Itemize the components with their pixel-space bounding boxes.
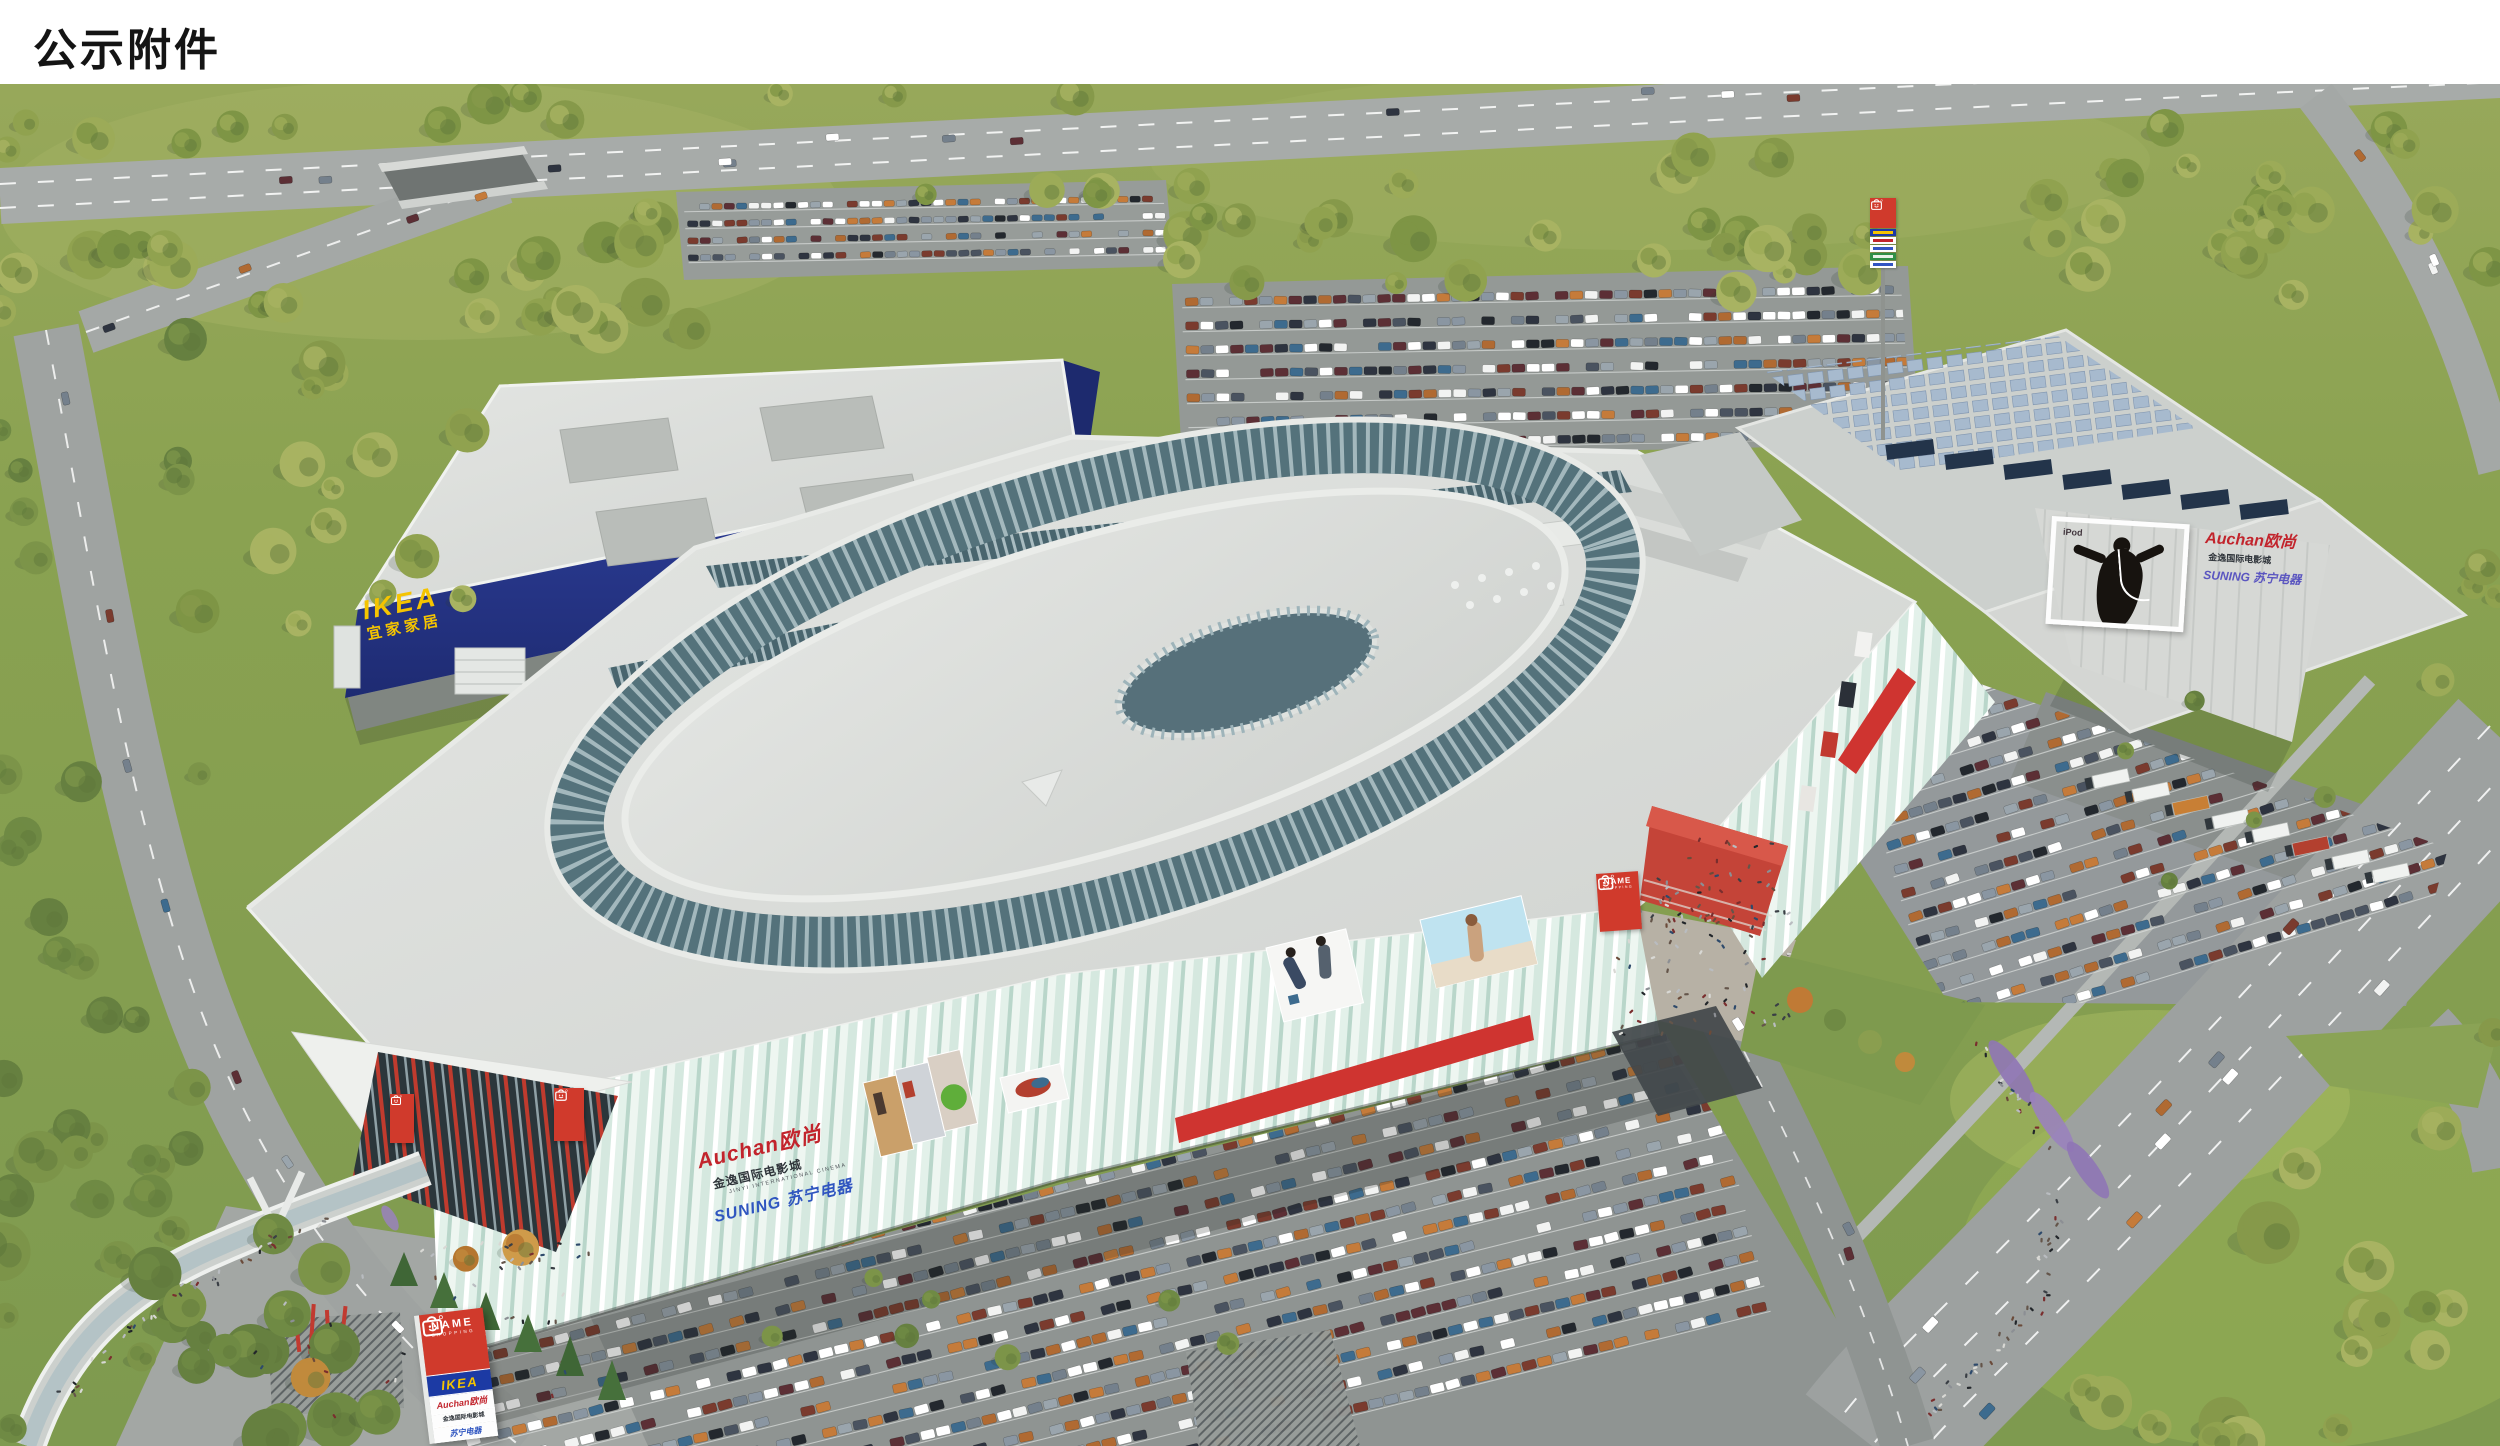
ne-facade-tenant-signs: Auchan欧尚 金逸国际电影城 SUNING 苏宁电器 [2203,524,2346,590]
ipod-label: iPod [2063,527,2083,538]
entrance-name-sign [390,1094,414,1143]
name-corner-sign: NAME SHOPPING [1596,871,1642,932]
shopping-bag-icon [1870,198,1883,211]
shopping-bag-icon [419,1312,446,1339]
rendering-scenery [0,0,2500,1446]
shopping-bag-icon [390,1094,402,1106]
pylon-name-box [1870,198,1896,228]
page-title: 公示附件 [33,14,221,78]
shopping-bag-icon [554,1088,568,1102]
pylon-name-panel: NAME SHOPPING [419,1308,490,1377]
shopping-bag-icon [1596,873,1615,892]
entrance-name-sign [554,1088,584,1141]
pylon-pole [1881,268,1885,440]
aerial-rendering: IKEA 宜家家居 Auchan欧尚 金逸国际电影城 JINYI INTERNA… [0,0,2500,1446]
public-notice-attachment-page: IKEA 宜家家居 Auchan欧尚 金逸国际电影城 JINYI INTERNA… [0,0,2500,1446]
highway-pylon-sign [1870,198,1896,440]
ipod-billboard: iPod [2045,516,2189,632]
header: 公示附件 [0,0,2500,84]
